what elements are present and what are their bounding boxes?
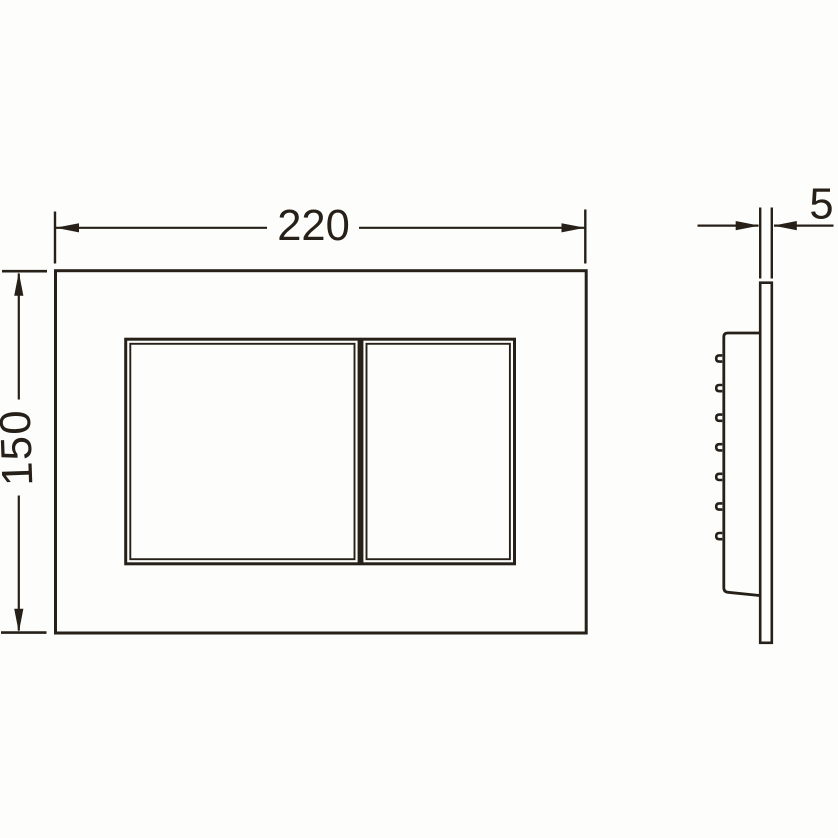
svg-text:150: 150: [0, 408, 42, 487]
svg-text:5: 5: [809, 181, 833, 229]
svg-text:220: 220: [277, 202, 350, 250]
